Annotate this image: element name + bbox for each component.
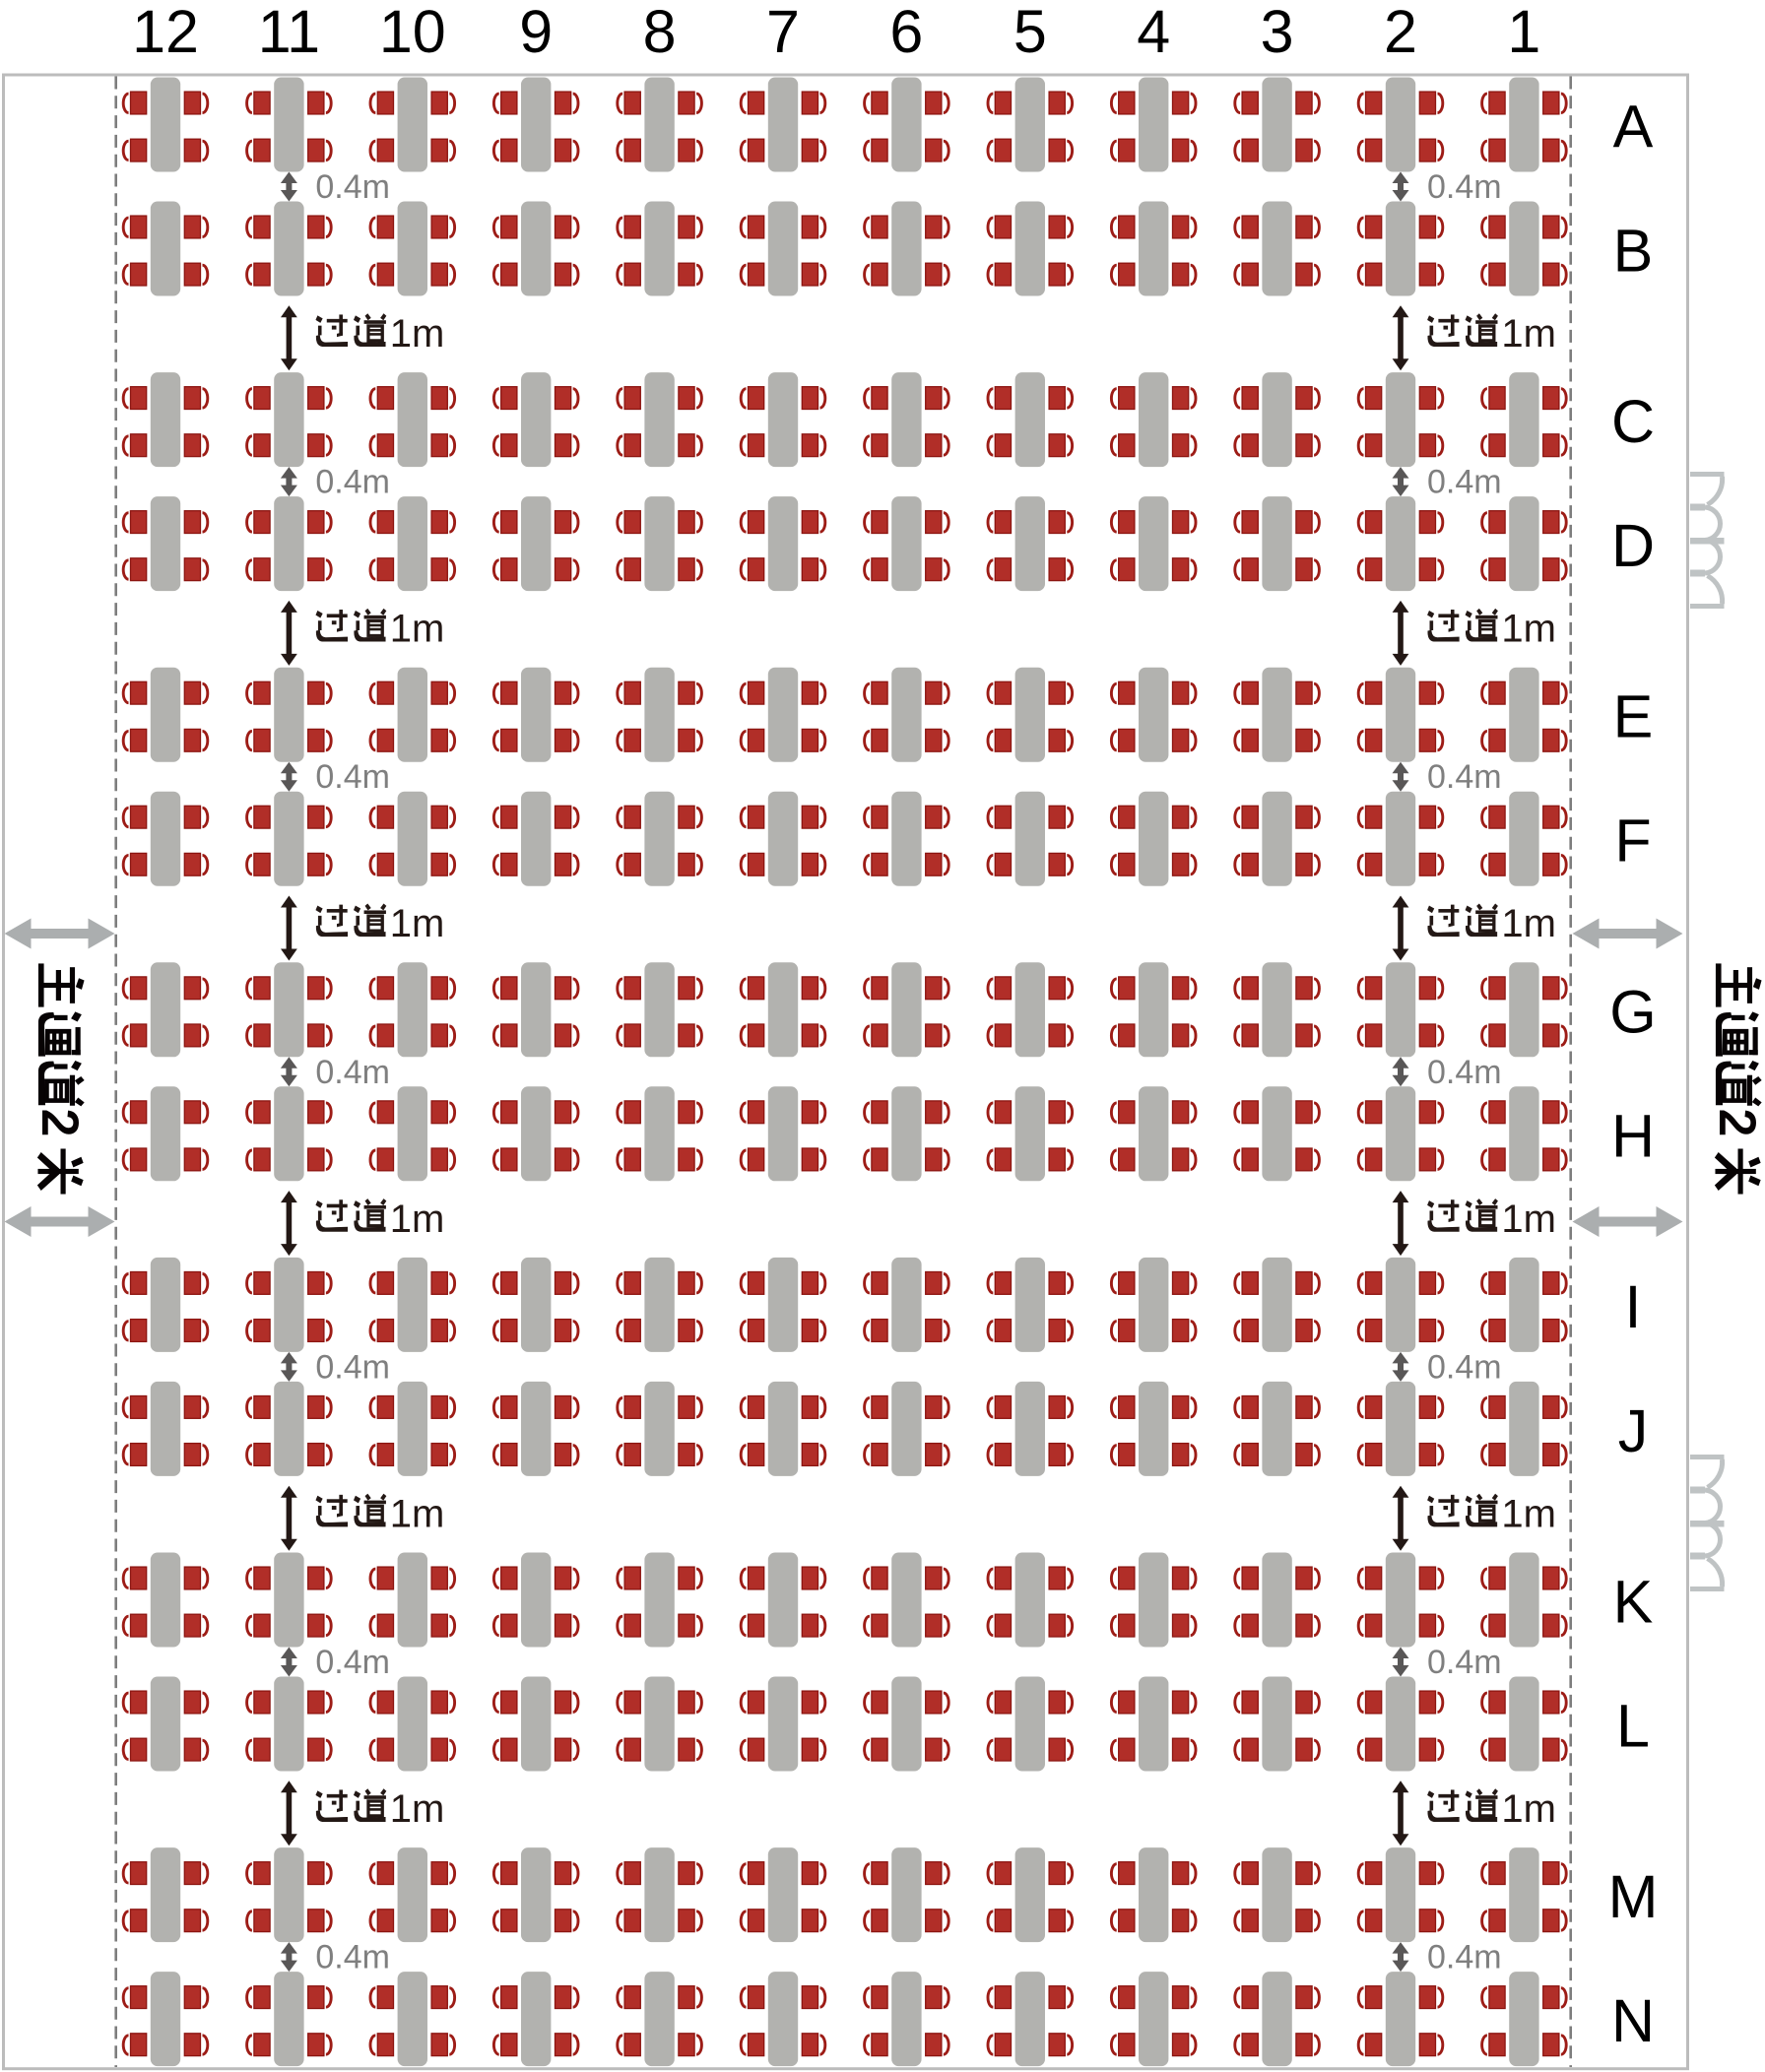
svg-text:2: 2 bbox=[1710, 1109, 1765, 1136]
svg-text:0.4m: 0.4m bbox=[1427, 1054, 1502, 1091]
svg-text:N: N bbox=[1611, 1987, 1655, 2054]
svg-text:A: A bbox=[1613, 94, 1654, 161]
svg-text:0.4m: 0.4m bbox=[1427, 168, 1502, 206]
svg-text:1m: 1m bbox=[390, 1787, 445, 1831]
svg-text:2: 2 bbox=[33, 1109, 88, 1136]
svg-text:0.4m: 0.4m bbox=[315, 1644, 390, 1681]
svg-text:1m: 1m bbox=[1501, 608, 1556, 651]
svg-text:7: 7 bbox=[766, 0, 800, 65]
svg-text:8: 8 bbox=[643, 0, 677, 65]
svg-text:1m: 1m bbox=[1501, 902, 1556, 945]
svg-text:6: 6 bbox=[889, 0, 923, 65]
svg-text:1m: 1m bbox=[390, 608, 445, 651]
svg-text:E: E bbox=[1613, 683, 1654, 750]
svg-text:2: 2 bbox=[1384, 0, 1417, 65]
svg-text:1m: 1m bbox=[390, 312, 445, 356]
svg-text:1m: 1m bbox=[1501, 1492, 1556, 1535]
svg-text:1m: 1m bbox=[1501, 1198, 1556, 1241]
svg-text:1m: 1m bbox=[390, 1198, 445, 1241]
svg-text:0.4m: 0.4m bbox=[315, 1054, 390, 1091]
svg-text:G: G bbox=[1609, 978, 1656, 1045]
svg-text:0.4m: 0.4m bbox=[315, 1348, 390, 1386]
svg-text:1: 1 bbox=[1507, 0, 1540, 65]
svg-text:11: 11 bbox=[258, 0, 320, 65]
svg-text:F: F bbox=[1614, 808, 1651, 874]
svg-text:10: 10 bbox=[379, 0, 446, 65]
svg-text:0.4m: 0.4m bbox=[315, 168, 390, 206]
svg-text:D: D bbox=[1611, 512, 1655, 579]
svg-text:0.4m: 0.4m bbox=[315, 758, 390, 796]
svg-text:5: 5 bbox=[1013, 0, 1047, 65]
svg-text:1m: 1m bbox=[390, 902, 445, 945]
svg-text:4: 4 bbox=[1137, 0, 1170, 65]
svg-text:1m: 1m bbox=[1501, 1787, 1556, 1831]
svg-text:B: B bbox=[1613, 218, 1654, 285]
svg-text:9: 9 bbox=[519, 0, 553, 65]
svg-text:0.4m: 0.4m bbox=[315, 1939, 390, 1976]
svg-text:1m: 1m bbox=[390, 1492, 445, 1535]
svg-text:0.4m: 0.4m bbox=[1427, 464, 1502, 501]
svg-text:0.4m: 0.4m bbox=[315, 464, 390, 501]
svg-text:0.4m: 0.4m bbox=[1427, 1939, 1502, 1976]
svg-text:J: J bbox=[1618, 1397, 1649, 1464]
svg-text:K: K bbox=[1613, 1569, 1654, 1636]
svg-text:0.4m: 0.4m bbox=[1427, 1644, 1502, 1681]
svg-text:0.4m: 0.4m bbox=[1427, 1348, 1502, 1386]
svg-text:I: I bbox=[1625, 1273, 1642, 1340]
svg-text:C: C bbox=[1611, 388, 1655, 455]
svg-text:12: 12 bbox=[132, 0, 199, 65]
svg-text:0.4m: 0.4m bbox=[1427, 758, 1502, 796]
svg-text:H: H bbox=[1611, 1102, 1655, 1169]
svg-text:M: M bbox=[1608, 1863, 1659, 1930]
svg-text:1m: 1m bbox=[1501, 312, 1556, 356]
svg-text:3: 3 bbox=[1261, 0, 1294, 65]
svg-text:L: L bbox=[1616, 1693, 1650, 1760]
